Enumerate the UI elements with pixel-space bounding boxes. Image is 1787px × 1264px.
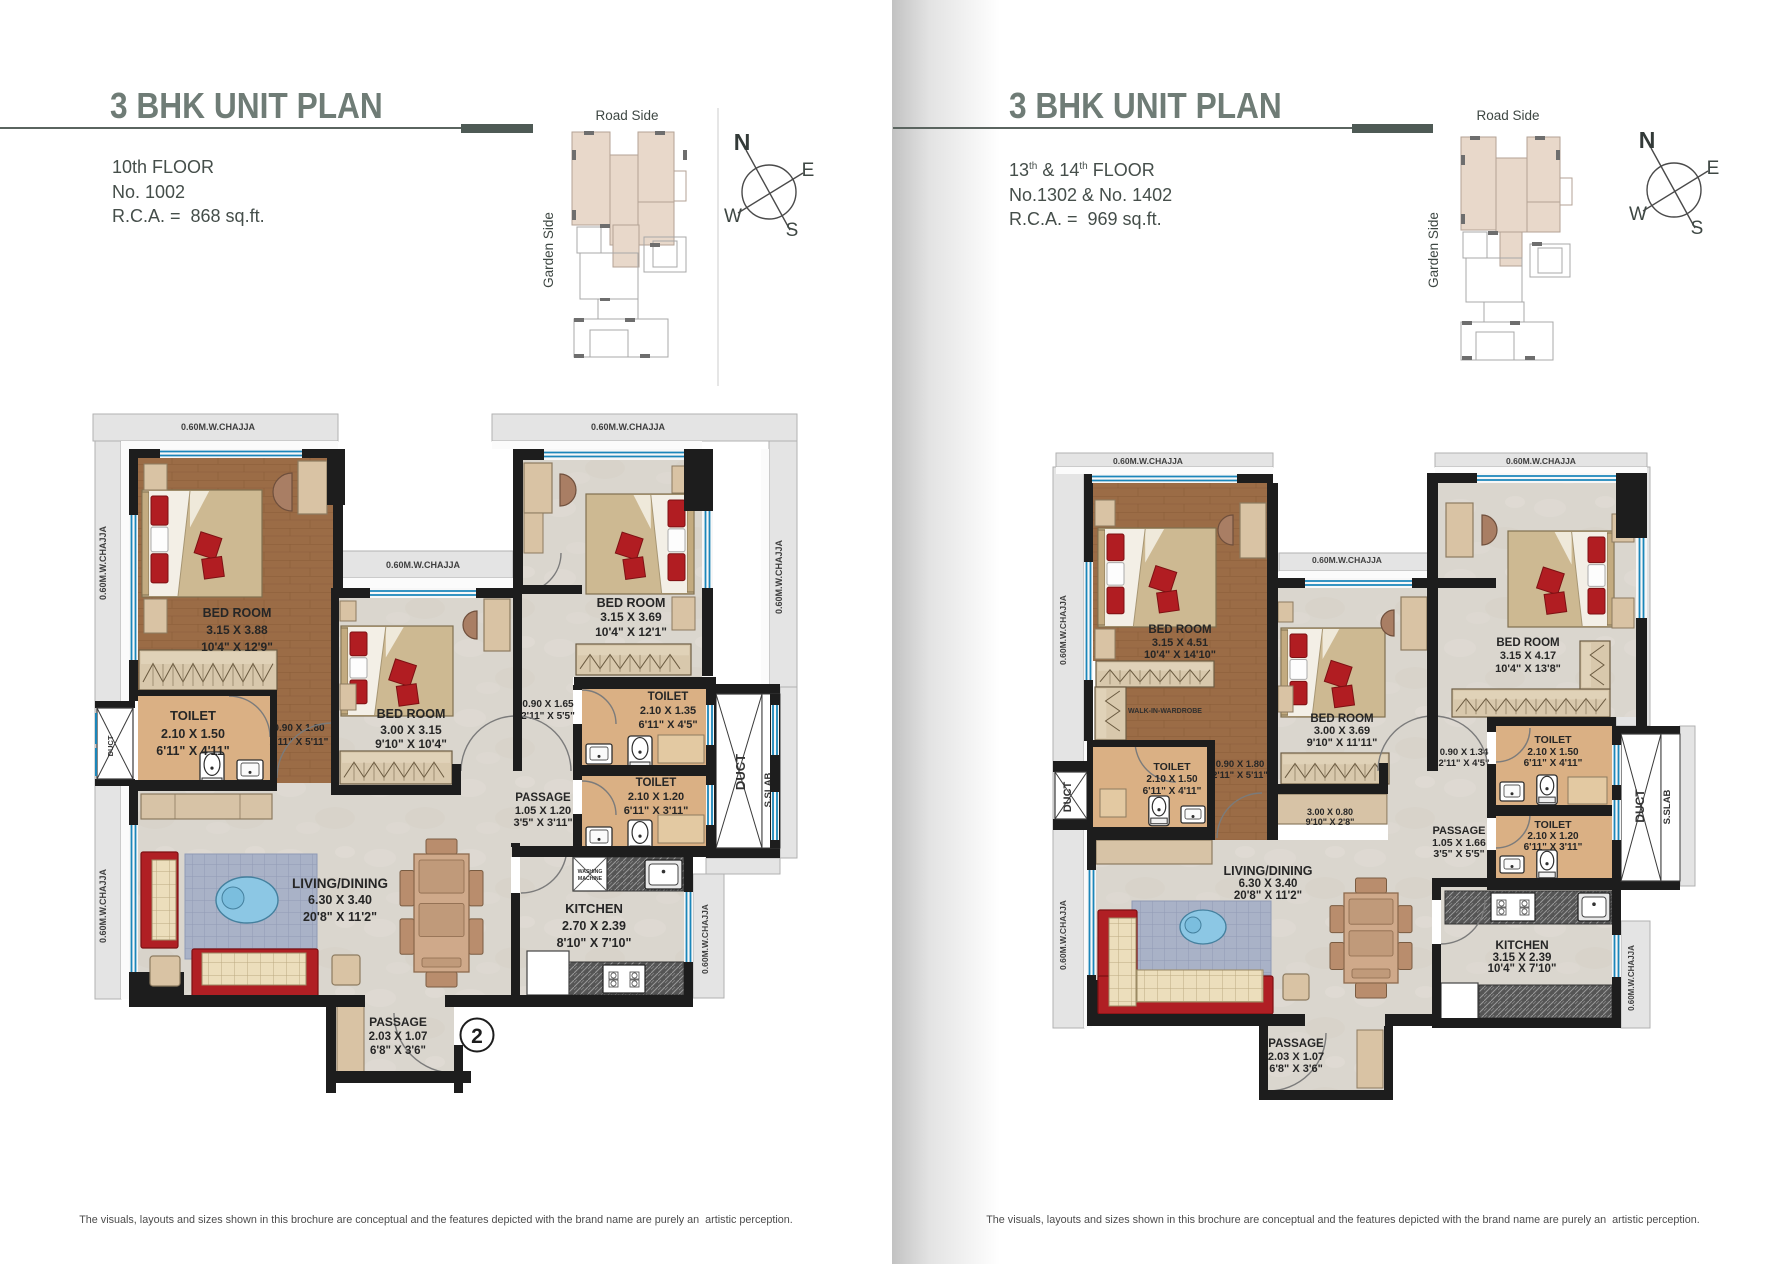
svg-text:0.60M.W.CHAJJA: 0.60M.W.CHAJJA xyxy=(98,525,108,600)
svg-text:PASSAGE: PASSAGE xyxy=(1268,1038,1324,1050)
svg-text:2.10 X 1.20: 2.10 X 1.20 xyxy=(628,791,684,803)
svg-text:WASHING: WASHING xyxy=(578,869,603,875)
svg-text:2.03 X 1.07: 2.03 X 1.07 xyxy=(1268,1051,1324,1063)
svg-text:WALK-IN-WARDROBE: WALK-IN-WARDROBE xyxy=(1128,708,1202,715)
svg-text:6'11" X 4'11": 6'11" X 4'11" xyxy=(1143,786,1202,797)
svg-text:Garden Side: Garden Side xyxy=(541,212,556,288)
svg-text:Road Side: Road Side xyxy=(595,108,658,123)
svg-text:TOILET: TOILET xyxy=(636,777,677,789)
svg-text:8'10" X 7'10": 8'10" X 7'10" xyxy=(557,936,632,950)
svg-text:TOILET: TOILET xyxy=(1534,734,1572,746)
svg-text:10'4" X 14'10": 10'4" X 14'10" xyxy=(1144,649,1216,661)
svg-text:0.60M.W.CHAJJA: 0.60M.W.CHAJJA xyxy=(98,868,108,943)
svg-text:6'11" X 3'11": 6'11" X 3'11" xyxy=(624,805,689,817)
svg-text:2.10 X 1.50: 2.10 X 1.50 xyxy=(1146,774,1198,785)
svg-text:PASSAGE: PASSAGE xyxy=(1433,825,1486,837)
svg-text:DUCT: DUCT xyxy=(733,754,748,790)
svg-text:E: E xyxy=(802,160,815,181)
svg-text:1.05 X 1.20: 1.05 X 1.20 xyxy=(515,805,571,817)
svg-text:10'4" X 12'1": 10'4" X 12'1" xyxy=(595,625,667,639)
svg-text:0.60M.W.CHAJJA: 0.60M.W.CHAJJA xyxy=(1058,900,1068,970)
svg-text:3'5" X 5'5": 3'5" X 5'5" xyxy=(1433,848,1484,860)
svg-text:2'11" X 5'11": 2'11" X 5'11" xyxy=(1212,770,1268,781)
svg-text:BED ROOM: BED ROOM xyxy=(1148,624,1211,636)
svg-text:2.10 X 1.50: 2.10 X 1.50 xyxy=(161,727,225,741)
svg-text:0.90 X 1.80: 0.90 X 1.80 xyxy=(1216,759,1265,770)
svg-text:9'10" X 2'8": 9'10" X 2'8" xyxy=(1306,817,1355,827)
svg-text:9'10" X 11'11": 9'10" X 11'11" xyxy=(1307,737,1378,749)
svg-text:LIVING/DINING: LIVING/DINING xyxy=(292,876,388,891)
svg-text:0.60M.W.CHAJJA: 0.60M.W.CHAJJA xyxy=(1627,945,1636,1011)
svg-text:3.15 X 3.88: 3.15 X 3.88 xyxy=(206,623,268,637)
svg-text:2'11" X 5'11": 2'11" X 5'11" xyxy=(270,737,329,748)
svg-text:0.60M.W.CHAJJA: 0.60M.W.CHAJJA xyxy=(386,560,461,570)
svg-text:6'11" X 3'11": 6'11" X 3'11" xyxy=(1524,842,1583,853)
svg-text:0.60M.W.CHAJJA: 0.60M.W.CHAJJA xyxy=(700,904,710,974)
svg-text:BED ROOM: BED ROOM xyxy=(1310,713,1373,725)
svg-text:W: W xyxy=(1629,204,1647,225)
svg-text:2'11" X 5'5": 2'11" X 5'5" xyxy=(521,711,575,722)
svg-text:0.60M.W.CHAJJA: 0.60M.W.CHAJJA xyxy=(1113,456,1183,466)
svg-text:PASSAGE: PASSAGE xyxy=(515,792,571,804)
svg-text:W: W xyxy=(724,206,742,227)
svg-text:S.SLAB: S.SLAB xyxy=(1662,789,1673,824)
svg-text:20'8" X 11'2": 20'8" X 11'2" xyxy=(1234,890,1302,902)
svg-text:2: 2 xyxy=(471,1025,483,1048)
svg-text:6'8" X 3'6": 6'8" X 3'6" xyxy=(1269,1063,1323,1075)
svg-text:0.60M.W.CHAJJA: 0.60M.W.CHAJJA xyxy=(1506,456,1576,466)
svg-text:6'8" X 3'6": 6'8" X 3'6" xyxy=(370,1045,426,1057)
svg-text:2'11" X 4'5": 2'11" X 4'5" xyxy=(1438,758,1489,769)
svg-text:0.60M.W.CHAJJA: 0.60M.W.CHAJJA xyxy=(1058,595,1068,665)
svg-text:S: S xyxy=(786,220,799,241)
svg-text:N: N xyxy=(1639,127,1656,153)
svg-text:3.00 X 3.15: 3.00 X 3.15 xyxy=(380,723,442,737)
svg-text:N: N xyxy=(734,129,751,155)
svg-text:2.70 X 2.39: 2.70 X 2.39 xyxy=(562,919,626,933)
svg-text:3.00 X 0.80: 3.00 X 0.80 xyxy=(1307,807,1353,817)
svg-text:9'10" X 10'4": 9'10" X 10'4" xyxy=(375,737,447,751)
svg-text:0.90 X 1.34: 0.90 X 1.34 xyxy=(1440,747,1489,758)
svg-text:DUCT: DUCT xyxy=(106,735,115,756)
svg-text:3.15 X 4.17: 3.15 X 4.17 xyxy=(1500,650,1556,662)
svg-text:3.00 X 3.69: 3.00 X 3.69 xyxy=(1314,725,1370,737)
svg-text:3.15 X 3.69: 3.15 X 3.69 xyxy=(600,610,662,624)
svg-text:6'11" X 4'11": 6'11" X 4'11" xyxy=(1524,758,1583,769)
svg-text:2.03 X 1.07: 2.03 X 1.07 xyxy=(369,1031,428,1043)
svg-text:2.10 X 1.20: 2.10 X 1.20 xyxy=(1527,831,1579,842)
svg-text:10'4" X 12'9": 10'4" X 12'9" xyxy=(201,640,273,654)
svg-text:PASSAGE: PASSAGE xyxy=(369,1015,427,1029)
svg-text:6.30 X 3.40: 6.30 X 3.40 xyxy=(1239,878,1298,890)
svg-text:6'11" X 4'5": 6'11" X 4'5" xyxy=(638,719,697,731)
svg-text:MACHINE: MACHINE xyxy=(578,876,603,882)
svg-text:3'5" X 3'11": 3'5" X 3'11" xyxy=(513,817,572,829)
svg-text:Road Side: Road Side xyxy=(1476,108,1539,123)
svg-text:20'8" X 11'2": 20'8" X 11'2" xyxy=(303,910,377,924)
svg-text:2.10 X 1.50: 2.10 X 1.50 xyxy=(1527,747,1579,758)
svg-text:KITCHEN: KITCHEN xyxy=(565,901,623,916)
svg-text:BED ROOM: BED ROOM xyxy=(377,707,446,721)
svg-text:BED ROOM: BED ROOM xyxy=(597,596,666,610)
svg-text:KITCHEN: KITCHEN xyxy=(1495,938,1548,952)
svg-text:TOILET: TOILET xyxy=(1534,819,1572,831)
svg-text:0.60M.W.CHAJJA: 0.60M.W.CHAJJA xyxy=(1312,555,1382,565)
svg-text:TOILET: TOILET xyxy=(170,708,216,723)
svg-text:BED ROOM: BED ROOM xyxy=(1496,637,1559,649)
svg-text:TOILET: TOILET xyxy=(1153,761,1191,773)
svg-text:10'4" X 13'8": 10'4" X 13'8" xyxy=(1495,663,1561,675)
svg-text:0.60M.W.CHAJJA: 0.60M.W.CHAJJA xyxy=(591,422,666,432)
svg-text:0.90 X 1.65: 0.90 X 1.65 xyxy=(522,699,574,710)
svg-text:2.10 X 1.35: 2.10 X 1.35 xyxy=(640,705,696,717)
svg-text:E: E xyxy=(1707,158,1720,179)
svg-text:10'4" X 7'10": 10'4" X 7'10" xyxy=(1488,963,1557,975)
svg-text:TOILET: TOILET xyxy=(648,691,689,703)
svg-text:DUCT: DUCT xyxy=(1062,781,1074,812)
svg-text:6.30 X 3.40: 6.30 X 3.40 xyxy=(308,893,372,907)
svg-text:6'11" X 4'11": 6'11" X 4'11" xyxy=(156,744,229,758)
svg-text:S: S xyxy=(1691,218,1704,239)
svg-text:Garden Side: Garden Side xyxy=(1426,212,1441,288)
svg-text:BED ROOM: BED ROOM xyxy=(203,606,272,620)
svg-text:DUCT: DUCT xyxy=(1633,789,1647,823)
svg-text:0.60M.W.CHAJJA: 0.60M.W.CHAJJA xyxy=(774,539,784,614)
svg-text:3.15 X 4.51: 3.15 X 4.51 xyxy=(1152,637,1208,649)
svg-text:LIVING/DINING: LIVING/DINING xyxy=(1224,864,1313,878)
svg-text:0.60M.W.CHAJJA: 0.60M.W.CHAJJA xyxy=(181,422,256,432)
